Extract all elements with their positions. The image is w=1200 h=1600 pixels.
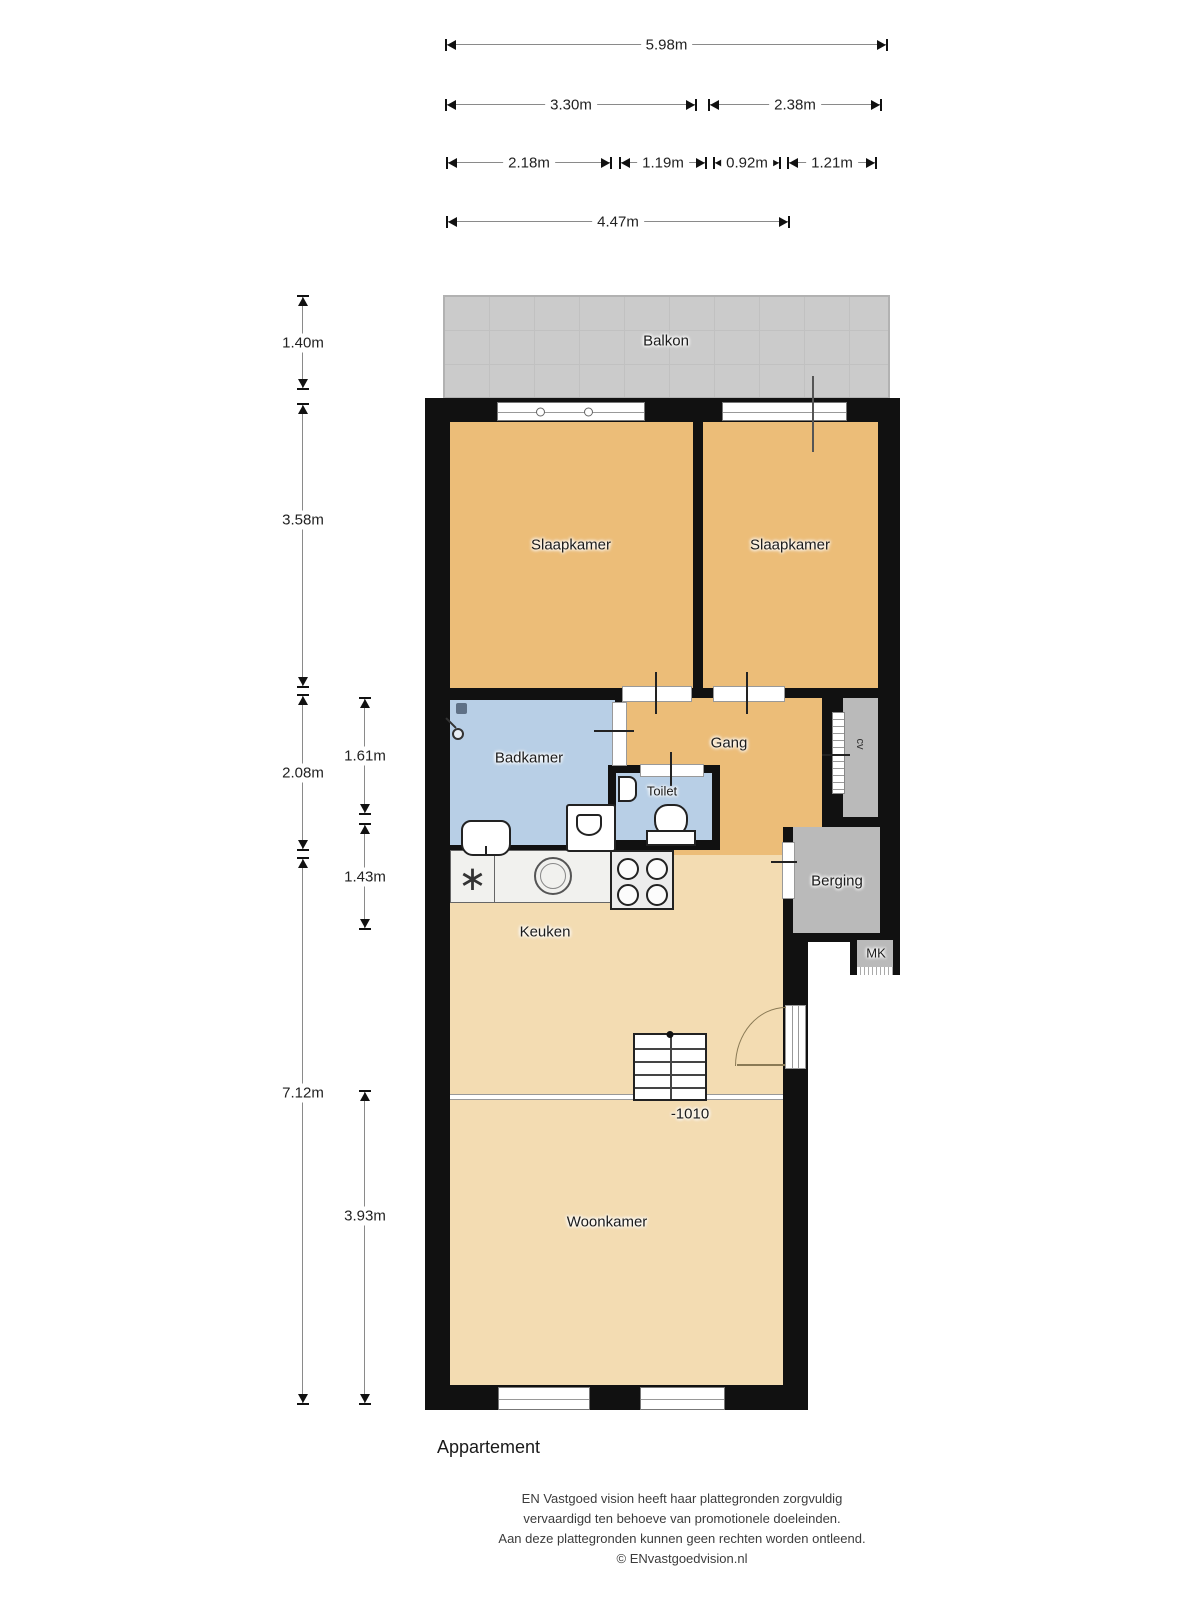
- label-gang: Gang: [711, 735, 748, 752]
- mk-vent: [857, 967, 893, 975]
- room-keuken-woonkamer: [450, 850, 783, 1385]
- door-slaapkamer-left: [622, 686, 692, 702]
- label-slaapkamer-right: Slaapkamer: [750, 537, 830, 554]
- fountain-sink-icon: [618, 776, 637, 802]
- label-level-marker: -1010: [671, 1106, 709, 1123]
- label-toilet: Toilet: [647, 784, 677, 799]
- dim-label: 2.08m: [278, 763, 328, 782]
- stair-marker-dot: [667, 1031, 674, 1038]
- door-badkamer: [612, 702, 627, 766]
- door-tick: [746, 672, 748, 714]
- dim-top-right-span: 2.38m: [708, 97, 882, 113]
- disclaimer-line: © ENvastgoedvision.nl: [427, 1549, 937, 1569]
- dim-label: 2.18m: [503, 155, 555, 172]
- exterior-cutout: [808, 942, 850, 976]
- dim-label: 3.93m: [340, 1207, 390, 1226]
- dim-label: 1.19m: [637, 155, 689, 172]
- door-slaapkamer-right: [713, 686, 785, 702]
- window-slaapkamer-left: [497, 402, 645, 421]
- dim-label: 3.58m: [278, 510, 328, 529]
- dim-inner-woonkamer: 3.93m: [357, 1090, 373, 1405]
- label-woonkamer: Woonkamer: [567, 1214, 648, 1231]
- window-woonkamer-left: [498, 1387, 590, 1410]
- dim-label: 4.47m: [592, 214, 644, 231]
- plan-title: Appartement: [437, 1437, 540, 1458]
- label-mk: MK: [866, 946, 886, 961]
- label-badkamer: Badkamer: [495, 750, 563, 767]
- dim-left-balkon: 1.40m: [295, 295, 311, 390]
- cv-door-tick: [822, 754, 850, 756]
- door-tick: [594, 730, 634, 732]
- dim-top-seg4: 1.21m: [787, 155, 877, 171]
- disclaimer-line: Aan deze plattegronden kunnen geen recht…: [427, 1529, 937, 1549]
- dim-inner-badkamer: 1.61m: [357, 697, 373, 815]
- door-tick: [670, 752, 672, 786]
- berging-door-tick: [771, 861, 797, 863]
- dim-top-entry-span: 4.47m: [446, 214, 790, 230]
- sink-icon: [461, 820, 511, 856]
- dim-label: 5.98m: [641, 37, 693, 54]
- partition-keuken-woonkamer: [450, 1094, 783, 1100]
- dim-top-total: 5.98m: [445, 37, 888, 53]
- floorplan-canvas: 5.98m 3.30m 2.38m 2.18m 1.19m 0.92m 1.21…: [0, 0, 1200, 1600]
- cv-folding-door: [832, 712, 845, 794]
- dim-top-seg3: 0.92m: [713, 155, 781, 171]
- label-cv: cv: [854, 739, 866, 750]
- window-vent-icon: [536, 407, 545, 416]
- label-keuken: Keuken: [520, 924, 571, 941]
- dim-label: 7.12m: [278, 1083, 328, 1102]
- dim-label: 1.61m: [340, 747, 390, 766]
- label-slaapkamer-left: Slaapkamer: [531, 537, 611, 554]
- freezer-icon: ∗: [451, 851, 495, 902]
- shower-drain-icon: [456, 703, 467, 714]
- dim-left-slaapkamer: 3.58m: [295, 403, 311, 688]
- disclaimer-line: EN Vastgoed vision heeft haar plattegron…: [427, 1489, 937, 1509]
- window-slaapkamer-right: [722, 402, 847, 421]
- dim-inner-keuken: 1.43m: [357, 823, 373, 930]
- reference-line: [812, 376, 814, 452]
- toilet-icon: [646, 804, 692, 842]
- stairs: [633, 1033, 707, 1101]
- stair-rail: [670, 1035, 672, 1099]
- disclaimer-line: vervaardigd ten behoeve van promotionele…: [427, 1509, 937, 1529]
- window-woonkamer-right: [640, 1387, 725, 1410]
- stove-icon: [610, 850, 674, 910]
- disclaimer: EN Vastgoed vision heeft haar plattegron…: [427, 1489, 937, 1569]
- dim-label: 2.38m: [769, 97, 821, 114]
- entrance-door-leaf: [785, 1005, 806, 1069]
- label-berging: Berging: [811, 873, 863, 890]
- label-balkon: Balkon: [643, 333, 689, 350]
- door-tick: [655, 672, 657, 714]
- dim-label: 0.92m: [721, 155, 773, 172]
- dim-label: 1.21m: [806, 155, 858, 172]
- room-slaapkamer-right: [703, 422, 878, 688]
- kitchen-sink-icon: [534, 857, 572, 895]
- dim-label: 1.43m: [340, 867, 390, 886]
- room-slaapkamer-left: [450, 422, 693, 688]
- dim-top-seg2: 1.19m: [619, 155, 707, 171]
- door-toilet: [640, 764, 704, 777]
- closet-cv: [843, 698, 878, 817]
- dim-left-hal: 2.08m: [295, 694, 311, 851]
- berging-door: [782, 842, 795, 899]
- window-vent-icon: [584, 407, 593, 416]
- washing-machine-icon: [566, 804, 616, 852]
- entrance-door-base: [737, 1064, 785, 1066]
- shower-icon: [452, 728, 464, 740]
- dim-label: 1.40m: [278, 333, 328, 352]
- dim-label: 3.30m: [545, 97, 597, 114]
- dim-top-seg1: 2.18m: [446, 155, 612, 171]
- dim-top-left-span: 3.30m: [445, 97, 697, 113]
- dim-left-woongedeelte: 7.12m: [295, 857, 311, 1405]
